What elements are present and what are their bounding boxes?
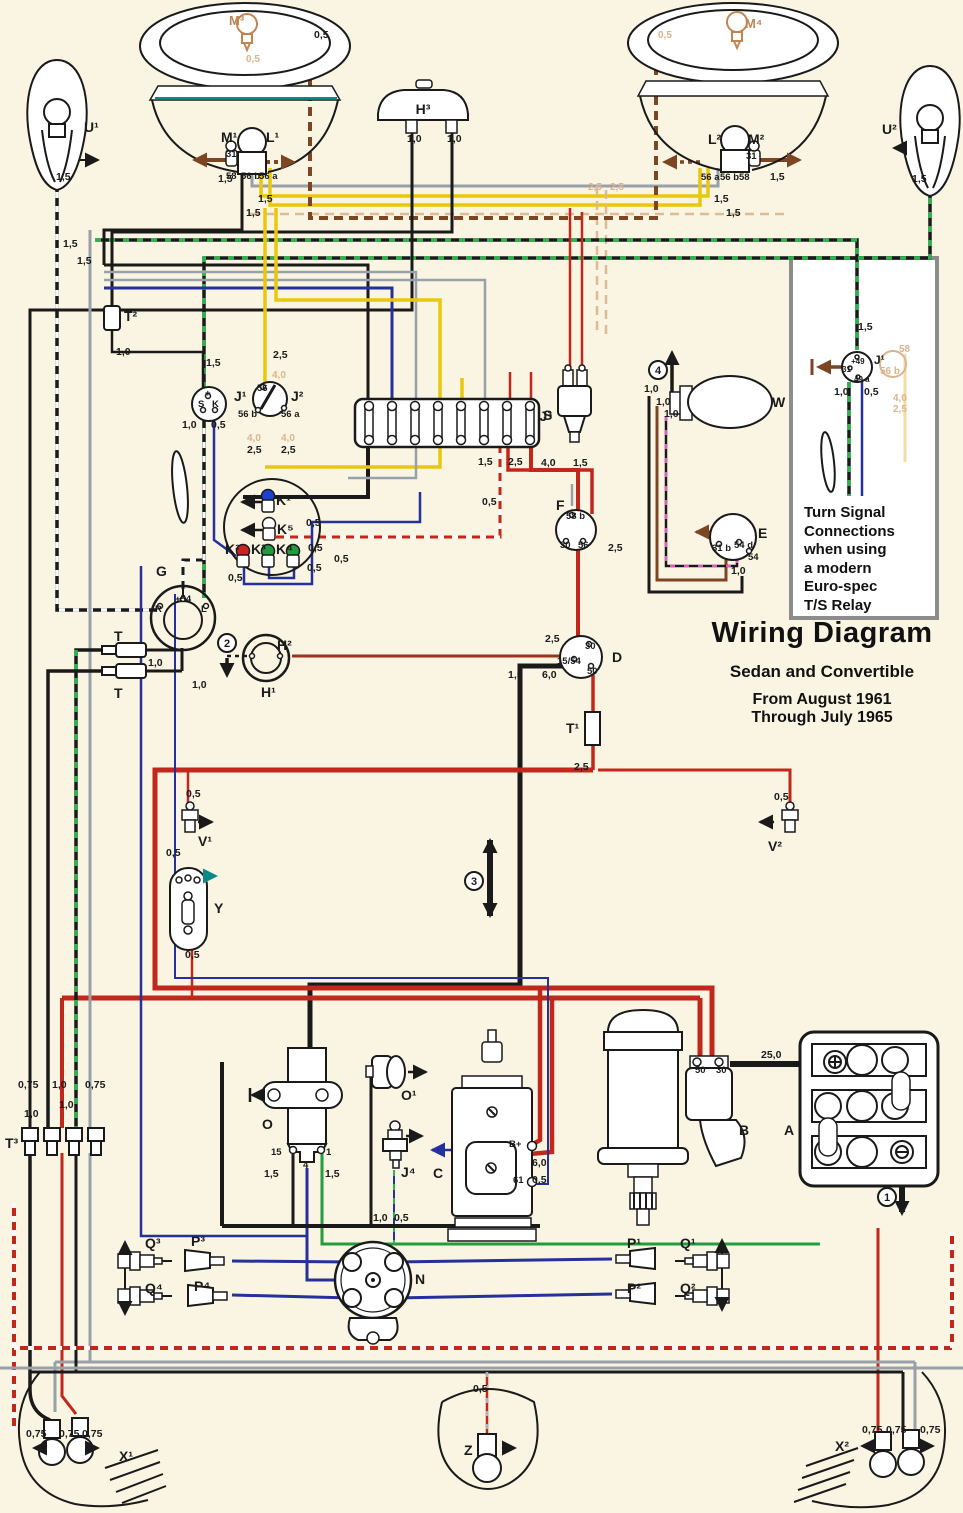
label-2,5: 2,5 [588, 182, 602, 193]
label-30: 30 [716, 1065, 727, 1076]
label-P⁴: P⁴ [194, 1278, 210, 1294]
svg-text:3: 3 [471, 876, 477, 888]
label-6,0: 6,0 [532, 1157, 547, 1169]
label-2,5: 2,5 [281, 444, 296, 456]
arrows [32, 141, 935, 1456]
spark-plug-q1 [675, 1252, 729, 1270]
label-O¹: O¹ [401, 1087, 417, 1103]
headlight-right [628, 3, 838, 172]
label-0,5: 0,5 [186, 788, 201, 800]
label-M²: M² [748, 131, 765, 147]
label-G: G [156, 563, 167, 579]
label-0,75: 0,75 [886, 1424, 907, 1436]
label-J⁴: J⁴ [401, 1164, 416, 1180]
label-1,0: 1,0 [24, 1108, 39, 1120]
battery-plus-terminal [824, 1051, 846, 1073]
label-2,5: 2,5 [273, 349, 288, 361]
label-+54: +54 [175, 594, 192, 605]
turn-signal-front-right-u2 [900, 66, 959, 196]
label-15: 15 [271, 1147, 282, 1158]
label-parking-bulb-right: M⁴ [745, 16, 762, 31]
label-4,0: 4,0 [281, 433, 295, 444]
label-U²: U² [882, 121, 897, 137]
label-starter: B [739, 1122, 749, 1138]
label-F: F [556, 497, 565, 513]
label-0,5: 0,5 [228, 572, 243, 584]
label-1,5: 1,5 [770, 171, 785, 183]
label-1,0: 1,0 [656, 396, 671, 408]
oil-pressure-switch-j4 [383, 1121, 407, 1168]
plug-connector-p3 [185, 1250, 224, 1271]
label-1,5: 1,5 [912, 173, 927, 185]
label-1,0: 1,0 [731, 565, 746, 577]
label-61: 61 [513, 1175, 524, 1186]
label-1,0: 1,0 [116, 346, 131, 358]
label-0,75: 0,75 [920, 1424, 941, 1436]
svg-text:1: 1 [884, 1192, 890, 1204]
label-54: 54 [748, 552, 759, 563]
connector-strip-t3 [22, 1128, 104, 1155]
door-switch-v2 [782, 802, 798, 832]
label-Q⁴: Q⁴ [145, 1280, 163, 1296]
brake-switch-j3 [558, 365, 591, 442]
connector-t2 [104, 306, 120, 330]
circled-number-3: 3 [465, 872, 483, 890]
label-1,0: 1,0 [182, 419, 197, 431]
label-M¹: M¹ [221, 129, 238, 145]
label-1,5: 1,5 [264, 1168, 279, 1180]
label-1,5: 1,5 [63, 238, 78, 250]
label-2,5: 2,5 [610, 182, 624, 193]
label-Q²: Q² [680, 1280, 696, 1296]
label-56: 56 [257, 383, 268, 394]
label-1,0: 1,0 [373, 1212, 388, 1224]
label-1,5: 1,5 [714, 193, 729, 205]
label-Q³: Q³ [145, 1235, 161, 1251]
label-1,5: 1,5 [478, 456, 493, 468]
wiring-diagram-svg: M³M⁴M¹L¹L²M²H³U¹U²T²J¹J²SJ³WEFK¹K⁵K²K³K⁴… [0, 0, 963, 1513]
label-4,0: 4,0 [247, 433, 261, 444]
label-1,5: 1,5 [726, 207, 741, 219]
indicator-k5 [263, 518, 276, 541]
circled-number-4: 4 [649, 361, 667, 379]
label-0,75: 0,75 [862, 1424, 883, 1436]
label-0,5: 0,5 [314, 29, 329, 41]
label-56: 56 [578, 540, 589, 551]
label-H²: H² [277, 637, 292, 653]
label-ignition-switch: D [612, 649, 622, 665]
label-58: 58 [899, 344, 911, 355]
label-+49: +49 [851, 357, 865, 366]
door-switch-v1 [182, 802, 198, 832]
label-X¹: X¹ [119, 1448, 133, 1464]
ignition-coil-o [262, 1048, 342, 1162]
plug-connector-p1 [616, 1248, 655, 1269]
label-K⁴: K⁴ [276, 541, 293, 557]
label-1,5: 1,5 [258, 193, 273, 205]
label-0,75: 0,75 [59, 1428, 80, 1440]
label-0,5: 0,5 [473, 1383, 488, 1395]
label-0,75: 0,75 [85, 1079, 106, 1091]
label-+: + [205, 388, 211, 399]
connector-t1 [585, 712, 600, 745]
label-S: S [198, 399, 204, 410]
label-license-light: Z [464, 1442, 473, 1458]
label-56 b: 56 b [880, 366, 900, 377]
label-K³: K³ [251, 541, 266, 557]
wiring-diagram-page: Turn Signal Connections when using a mod… [0, 0, 963, 1513]
label-generator: C [433, 1165, 443, 1181]
label-0,5: 0,5 [394, 1212, 409, 1224]
label-4,0: 4,0 [893, 393, 907, 404]
label-P¹: P¹ [627, 1235, 641, 1251]
label-2,5: 2,5 [574, 761, 589, 773]
label-P³: P³ [191, 1233, 205, 1249]
label-0,5: 0,5 [306, 517, 321, 529]
svg-text:2: 2 [224, 638, 230, 650]
label-31: 31 [746, 151, 757, 162]
label-0,75: 0,75 [26, 1428, 47, 1440]
dome-light-y [170, 868, 207, 950]
label-1,5: 1,5 [573, 457, 588, 469]
label-56 a: 56 a [701, 172, 720, 183]
label-1,0: 1,0 [447, 133, 462, 145]
label-31 b: 31 b [712, 543, 731, 554]
label-V²: V² [768, 838, 782, 854]
label-0,5: 0,5 [185, 949, 200, 961]
label-1,5: 1,5 [218, 173, 233, 185]
label-4,0: 4,0 [272, 370, 286, 381]
device-o1 [366, 1056, 405, 1088]
label-Y: Y [214, 900, 224, 916]
label-J²: J² [291, 388, 304, 404]
label-V¹: V¹ [198, 833, 212, 849]
label-horn: H³ [416, 101, 431, 117]
label-T: T [114, 628, 123, 644]
label-B+: B+ [509, 1139, 522, 1150]
label-50: 50 [587, 666, 598, 677]
label-inset-relay: J¹ [874, 353, 885, 367]
label-coil: O [262, 1116, 273, 1132]
svg-text:4: 4 [655, 365, 662, 377]
label-J¹: J¹ [234, 388, 247, 404]
label-L²: L² [708, 131, 722, 147]
label-0,5: 0,5 [482, 496, 497, 508]
label-X²: X² [835, 1438, 849, 1454]
label-56 a: 56 a [259, 171, 278, 182]
battery-minus-terminal [891, 1141, 913, 1163]
label-0,5: 0,5 [334, 553, 349, 565]
label-E: E [758, 525, 767, 541]
label-0,5: 0,5 [166, 847, 181, 859]
circled-number-2: 2 [218, 634, 236, 652]
label-56 b: 56 b [238, 409, 257, 420]
label-1,5: 1,5 [246, 207, 261, 219]
label-2,5: 2,5 [545, 633, 560, 645]
label-K²: K² [225, 541, 240, 557]
generator-c [448, 1030, 537, 1241]
label-1,5: 1,5 [56, 171, 71, 183]
label-31: 31 [226, 149, 237, 160]
label-1,5: 1,5 [77, 255, 92, 267]
wiper-motor-w [670, 376, 772, 428]
label-1,0: 1,0 [644, 383, 659, 395]
distributor-n [335, 1242, 411, 1344]
starter-b [598, 1010, 745, 1225]
inset-stalk [819, 432, 837, 493]
label-15/54: 15/54 [557, 656, 581, 667]
label-P²: P² [627, 1280, 641, 1296]
label-25,0: 25,0 [761, 1049, 782, 1061]
label-2,5: 2,5 [508, 456, 523, 468]
battery-a [800, 1032, 938, 1186]
label-0,5: 0,5 [774, 791, 789, 803]
label-1,0: 1,0 [192, 679, 207, 691]
label-58: 58 [739, 172, 750, 183]
label-56 b: 56 b [241, 171, 260, 182]
label-54 d: 54 d [734, 540, 753, 551]
label-1,0: 1,0 [148, 657, 163, 669]
label-T: T [114, 685, 123, 701]
label-0,5: 0,5 [864, 386, 879, 398]
label-R: R [155, 604, 162, 615]
label-0,5: 0,5 [658, 30, 672, 41]
label-T¹: T¹ [566, 720, 580, 736]
label-0,5: 0,5 [211, 419, 226, 431]
label-1,0: 1,0 [52, 1079, 67, 1091]
label-1,0: 1,0 [834, 386, 849, 398]
label-T³: T³ [5, 1135, 19, 1151]
label-1: 1 [326, 1147, 332, 1158]
label-4,0: 4,0 [541, 457, 556, 469]
label-parking-bulb-left: M³ [229, 13, 245, 28]
label-1,0: 1,0 [59, 1099, 74, 1111]
label-2,5: 2,5 [608, 542, 623, 554]
label-2,5: 2,5 [247, 444, 262, 456]
label-0,5: 0,5 [307, 562, 322, 574]
turn-signal-stalk [169, 450, 190, 523]
cable-connectors-t [102, 643, 146, 678]
label-30: 30 [585, 641, 596, 652]
label-49 a: 49 a [854, 375, 870, 384]
label-distributor: N [415, 1271, 425, 1287]
label-56 b: 56 b [720, 172, 739, 183]
tail-light-x2 [794, 1372, 945, 1507]
label-J³: J³ [540, 408, 553, 424]
label-K¹: K¹ [276, 492, 291, 508]
label-1,0: 1,0 [664, 408, 679, 420]
indicator-k1 [262, 490, 275, 513]
label-31: 31 [842, 365, 851, 374]
label-1,5: 1,5 [508, 669, 523, 681]
label-battery: A [784, 1122, 794, 1138]
label-K: K [212, 399, 219, 410]
label-56 a: 56 a [281, 409, 300, 420]
label-50: 50 [695, 1065, 706, 1076]
label-1,5: 1,5 [858, 321, 873, 333]
fuse-box [355, 399, 539, 447]
label-T²: T² [124, 308, 138, 324]
label-0,5: 0,5 [532, 1174, 547, 1186]
label-0,75: 0,75 [82, 1428, 103, 1440]
label-0,75: 0,75 [18, 1079, 39, 1091]
label-L¹: L¹ [266, 129, 280, 145]
label-30: 30 [560, 540, 571, 551]
label-H¹: H¹ [261, 684, 276, 700]
label-0,5: 0,5 [308, 542, 323, 554]
label-58 b: 58 b [566, 511, 585, 522]
label-2,5: 2,5 [893, 404, 907, 415]
label-6,0: 6,0 [542, 669, 557, 681]
label-Q¹: Q¹ [680, 1235, 696, 1251]
label-1,0: 1,0 [407, 133, 422, 145]
label-4: 4 [303, 1160, 309, 1171]
label-K⁵: K⁵ [277, 521, 294, 537]
label-L: L [201, 604, 207, 615]
label-wiper-motor: W [772, 394, 786, 410]
label-1,5: 1,5 [325, 1168, 340, 1180]
label-U¹: U¹ [84, 119, 99, 135]
label-0,5: 0,5 [246, 54, 260, 65]
label-1,5: 1,5 [206, 357, 221, 369]
circled-number-1: 1 [878, 1188, 896, 1206]
